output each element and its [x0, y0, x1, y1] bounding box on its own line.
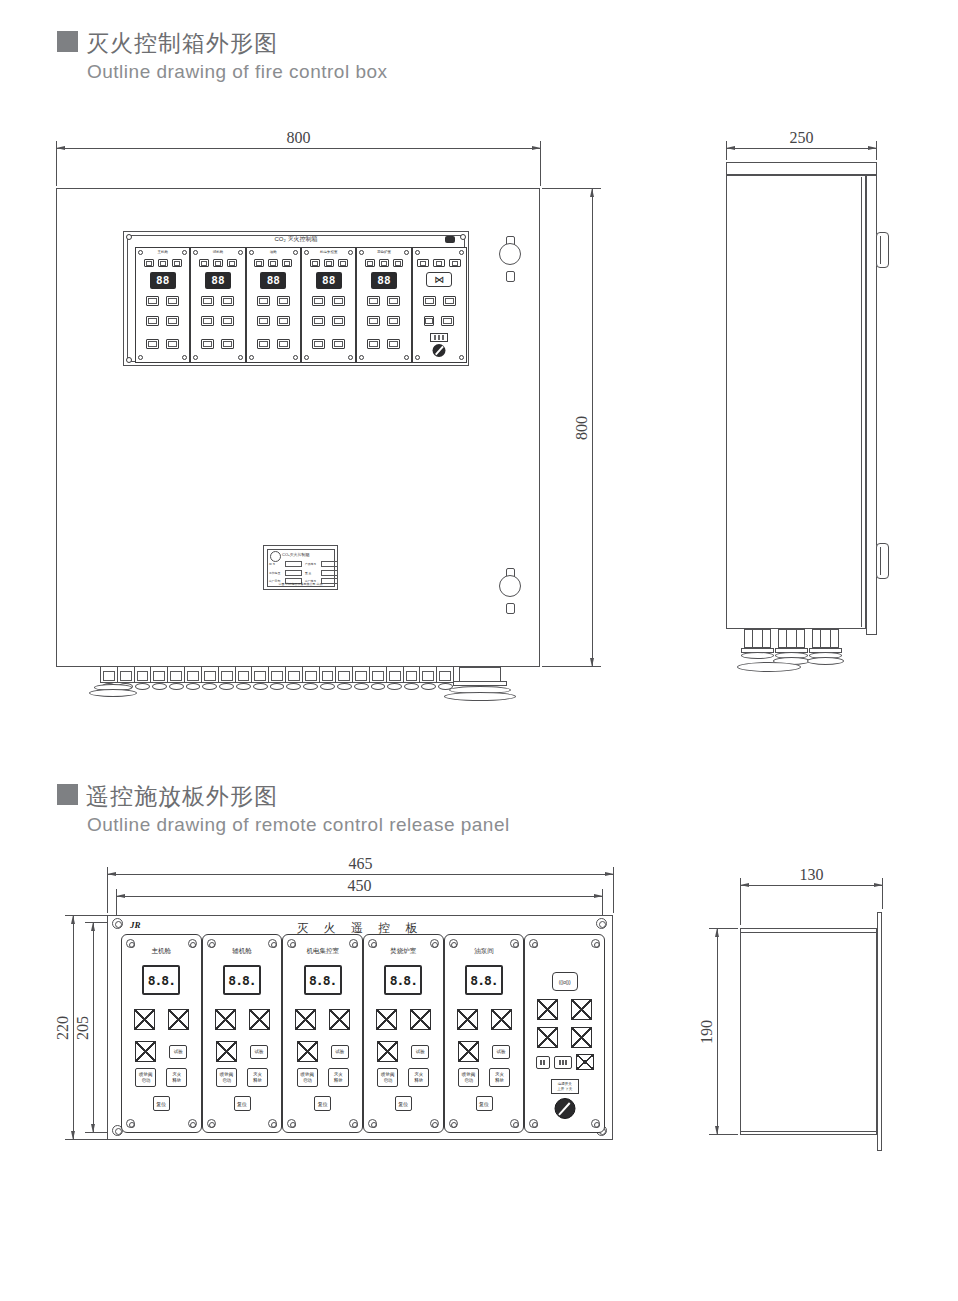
panel-flange	[877, 912, 882, 1151]
page-canvas: 灭火控制箱外形图 Outline drawing of fire control…	[0, 0, 958, 1301]
dim-label: 190	[698, 1002, 716, 1062]
panel-return-line	[741, 932, 876, 933]
dim-label: 130	[800, 866, 824, 884]
remote-box-side	[740, 928, 877, 1135]
panel-return-line	[741, 1131, 876, 1132]
remote-panel-side-view: 130 190	[0, 0, 958, 1301]
